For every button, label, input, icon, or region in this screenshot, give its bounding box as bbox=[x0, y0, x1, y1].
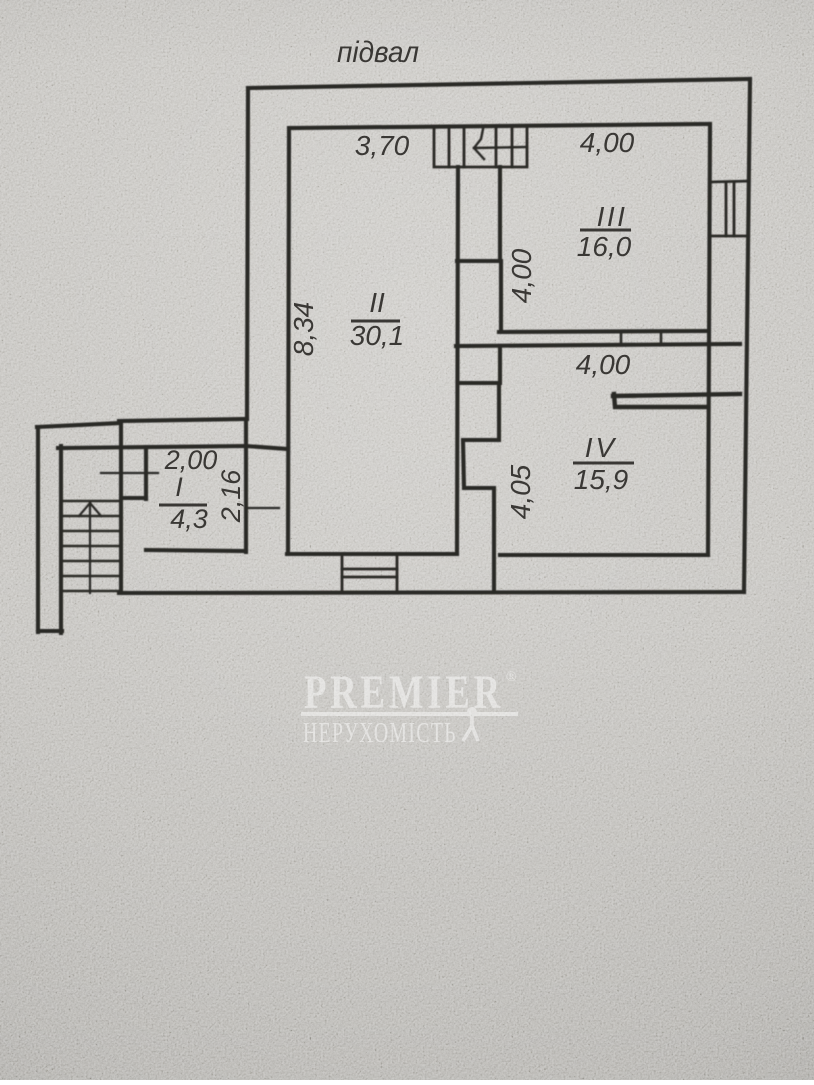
svg-text:III: III bbox=[597, 201, 628, 232]
svg-text:30,1: 30,1 bbox=[350, 320, 405, 351]
svg-text:15,9: 15,9 bbox=[574, 464, 629, 495]
svg-text:3,70: 3,70 bbox=[355, 130, 410, 161]
svg-text:4,00: 4,00 bbox=[576, 349, 631, 380]
svg-text:4,05: 4,05 bbox=[505, 464, 536, 519]
svg-text:IV: IV bbox=[585, 432, 617, 463]
svg-text:®: ® bbox=[506, 670, 517, 685]
svg-text:2,00: 2,00 bbox=[164, 445, 218, 475]
svg-text:НЕРУХОМІСТЬ: НЕРУХОМІСТЬ bbox=[303, 718, 457, 749]
svg-text:підвал: підвал bbox=[337, 36, 419, 69]
svg-text:4,3: 4,3 bbox=[170, 504, 208, 534]
svg-text:II: II bbox=[369, 287, 385, 318]
svg-text:I: I bbox=[175, 472, 183, 502]
svg-text:8,34: 8,34 bbox=[288, 302, 319, 357]
svg-text:16,0: 16,0 bbox=[577, 231, 632, 262]
svg-text:2,16: 2,16 bbox=[216, 469, 246, 524]
svg-text:4,00: 4,00 bbox=[580, 127, 635, 158]
svg-text:4,00: 4,00 bbox=[506, 248, 537, 303]
